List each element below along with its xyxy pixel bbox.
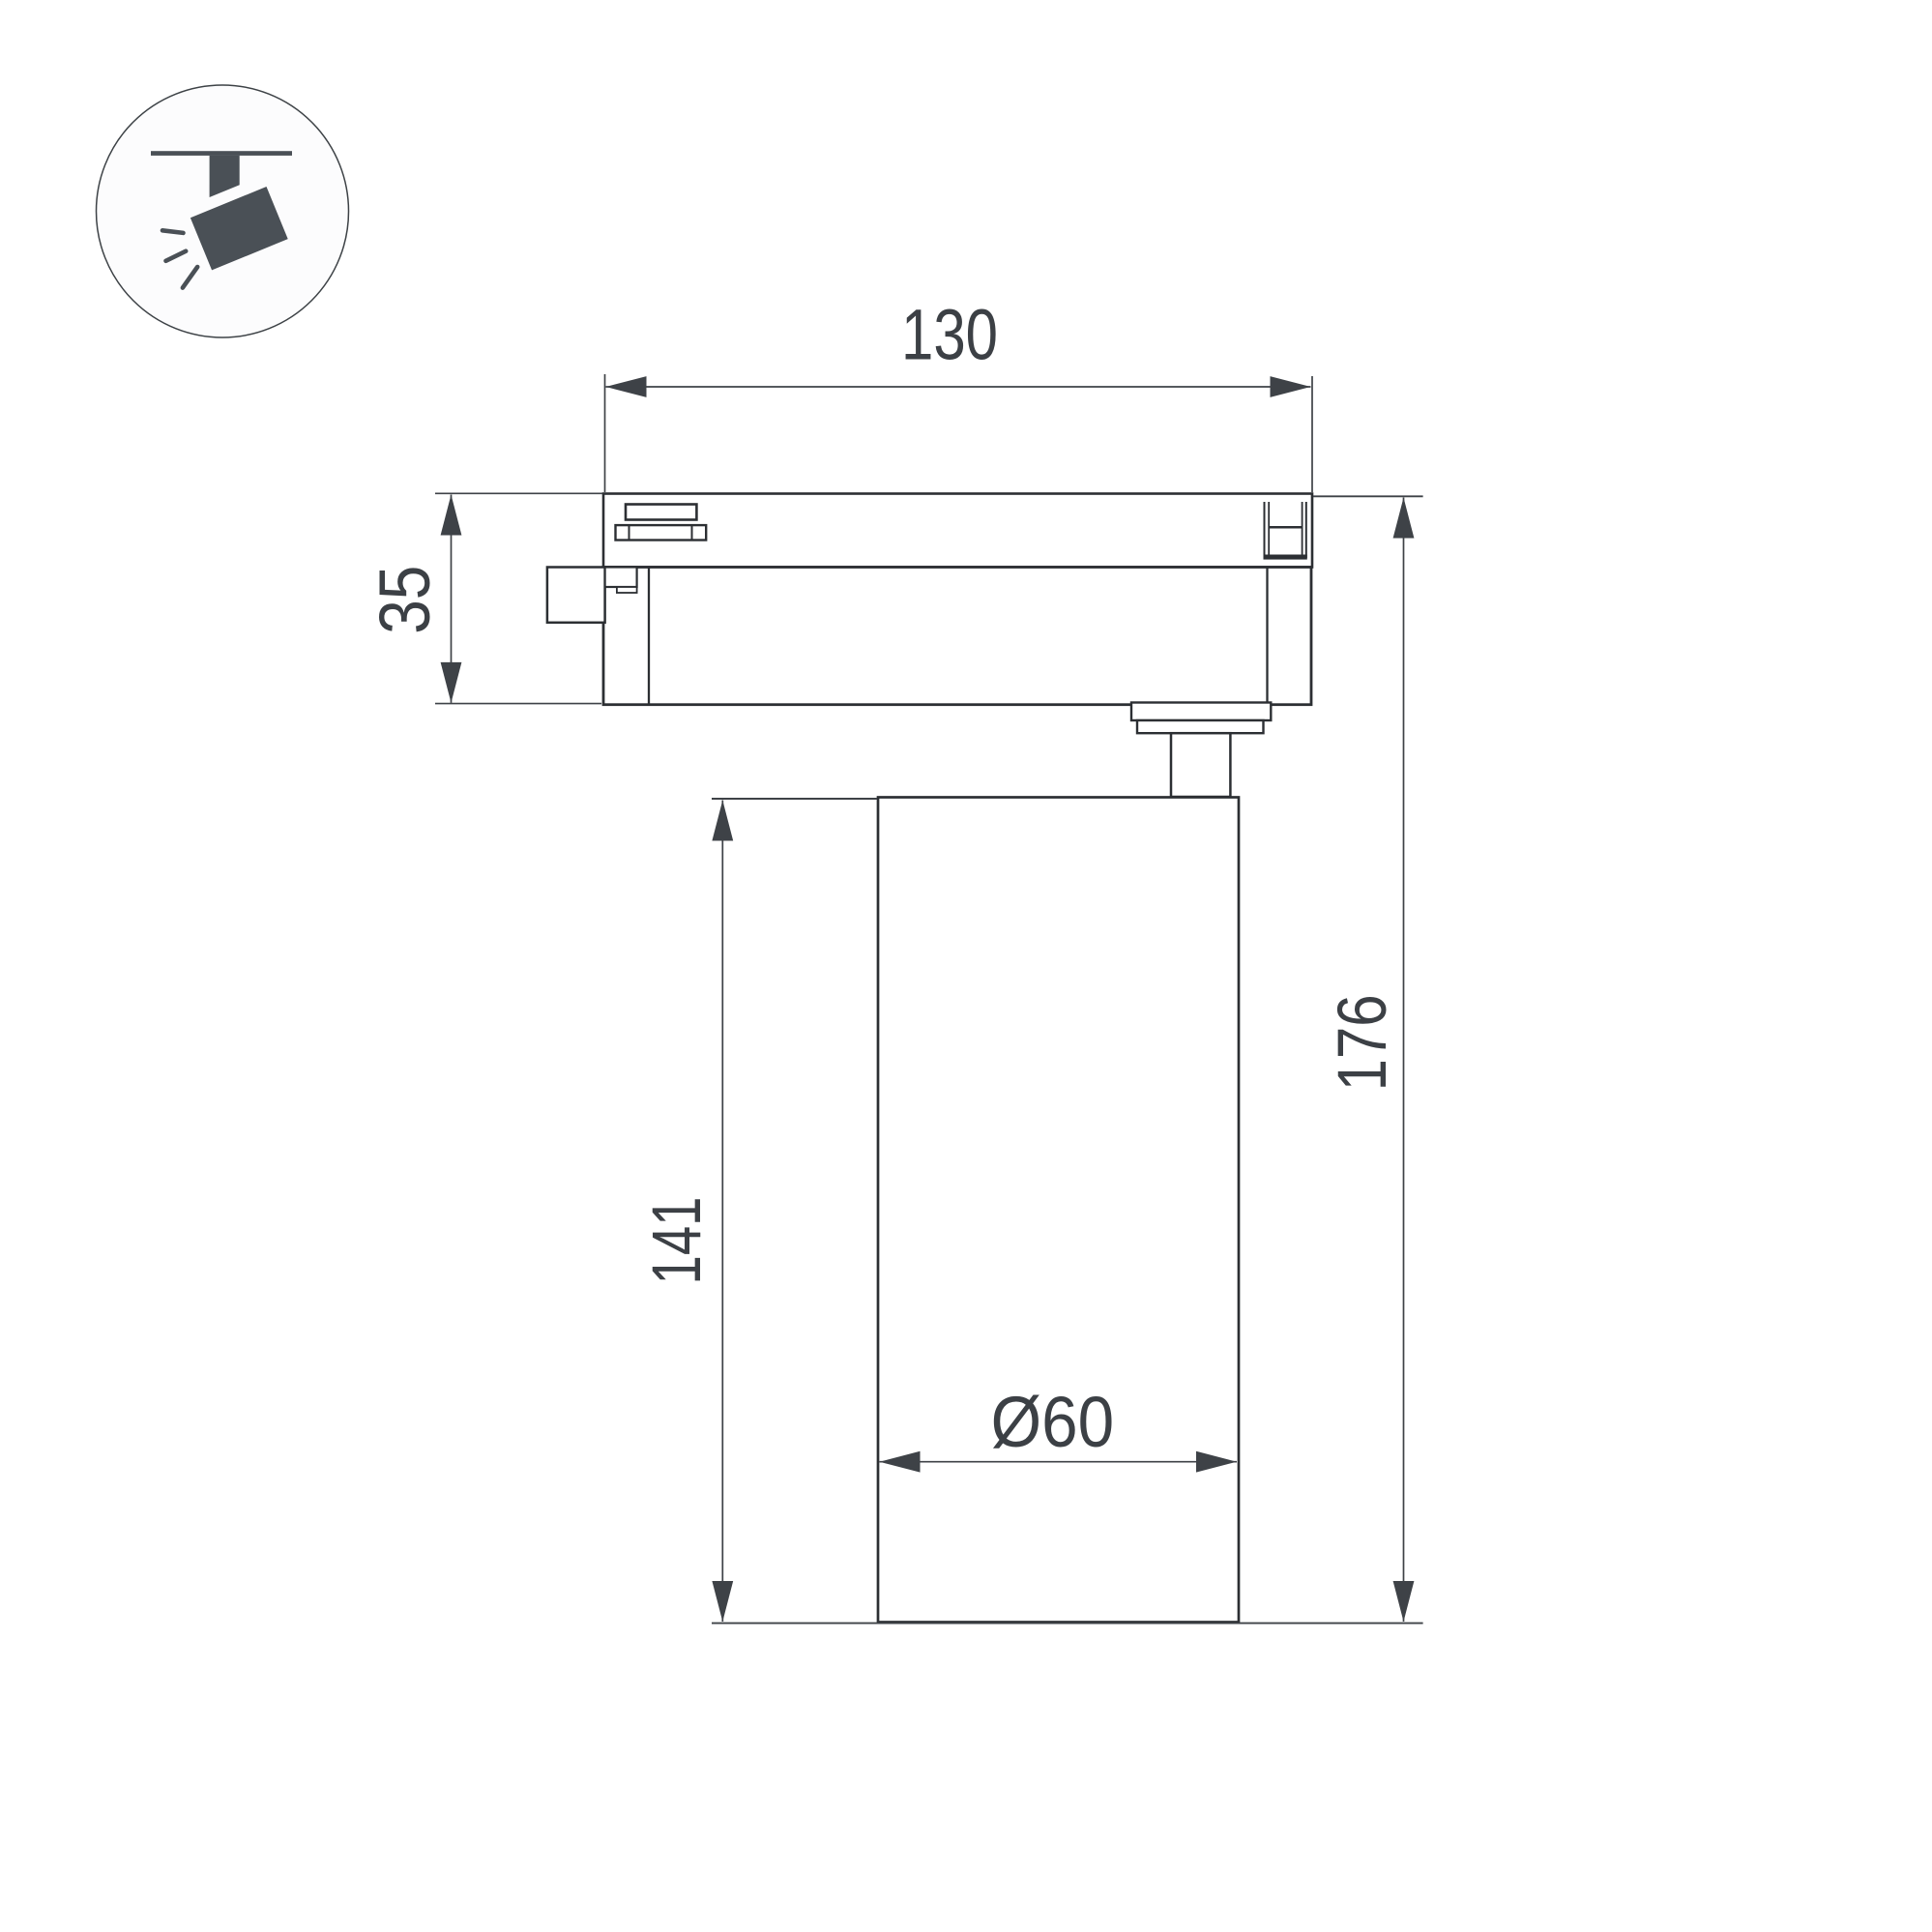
svg-text:176: 176: [1325, 994, 1401, 1091]
svg-text:130: 130: [901, 295, 998, 375]
svg-text:Ø60: Ø60: [991, 1382, 1115, 1462]
svg-text:35: 35: [365, 566, 445, 634]
svg-text:141: 141: [639, 1197, 716, 1285]
